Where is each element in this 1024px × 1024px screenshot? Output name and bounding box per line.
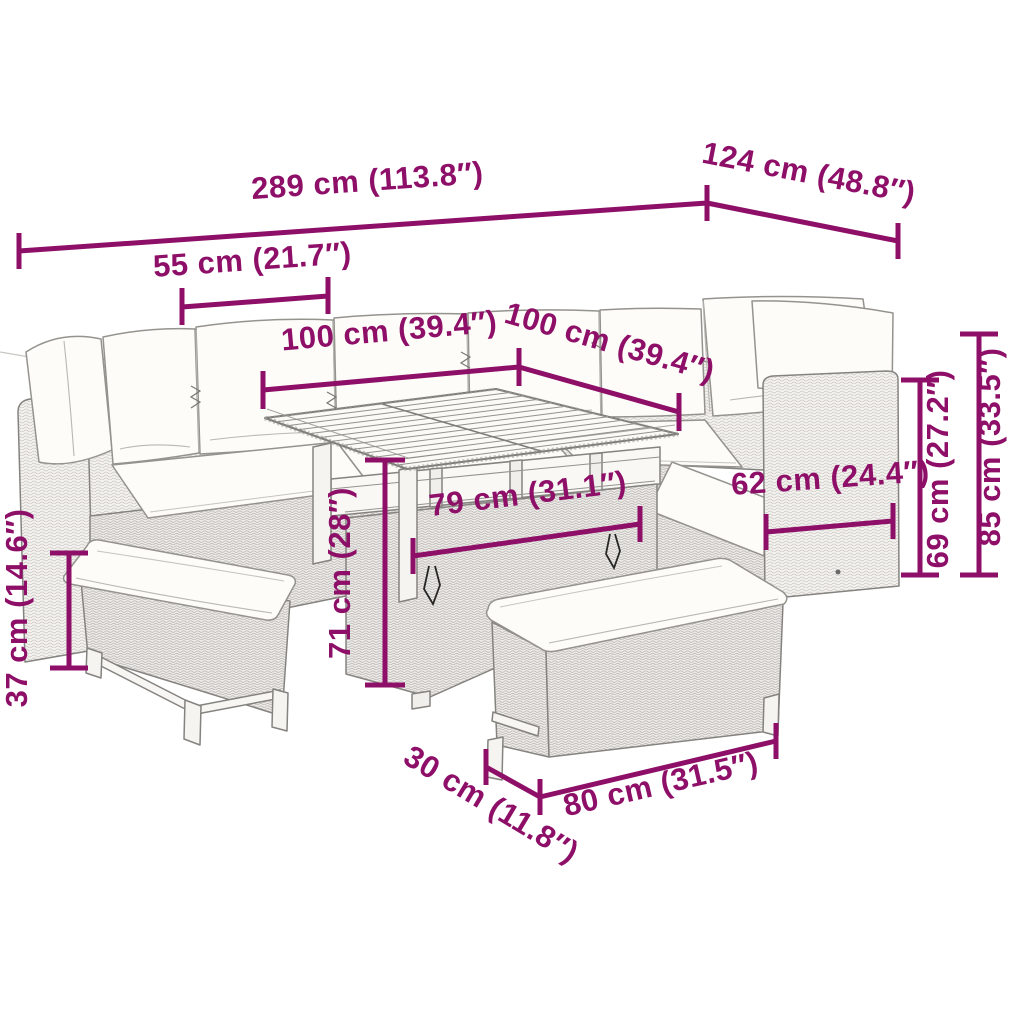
table-leg-front (399, 466, 417, 602)
dimension-line (182, 277, 328, 325)
table-foot (412, 691, 430, 709)
dimension-label: 80 cm (31.5″) (560, 744, 762, 823)
dimension-label: 289 cm (113.8″) (250, 155, 484, 206)
dimension-label: 71 cm (28″) (322, 487, 357, 659)
bench-leg (272, 689, 288, 731)
dimension-label: 55 cm (21.7″) (152, 235, 353, 284)
armrest-screw-hole (836, 570, 841, 575)
dimension-seat-width: 55 cm (21.7″) (152, 235, 353, 325)
dimension-line (707, 203, 898, 259)
bench-leg (86, 648, 102, 678)
bench-left (64, 540, 296, 745)
dimension-overall-depth: 124 cm (48.8″) (699, 135, 918, 259)
dimension-label: 85 cm (33.5″) (972, 348, 1007, 547)
dimension-label: 124 cm (48.8″) (699, 135, 918, 211)
bench-leg (184, 700, 201, 745)
dimension-label: 69 cm (27.2″) (920, 370, 955, 569)
dimension-label: 37 cm (14.6″) (0, 509, 34, 708)
dimension-total-height: 85 cm (33.5″) (960, 334, 1007, 575)
dimension-overall-width: 289 cm (113.8″) (19, 155, 707, 269)
back-cushion (103, 329, 199, 464)
back-cushion (26, 336, 112, 463)
product-dimension-diagram: 289 cm (113.8″) 124 cm (48.8″) 55 cm (21… (0, 0, 1024, 1024)
